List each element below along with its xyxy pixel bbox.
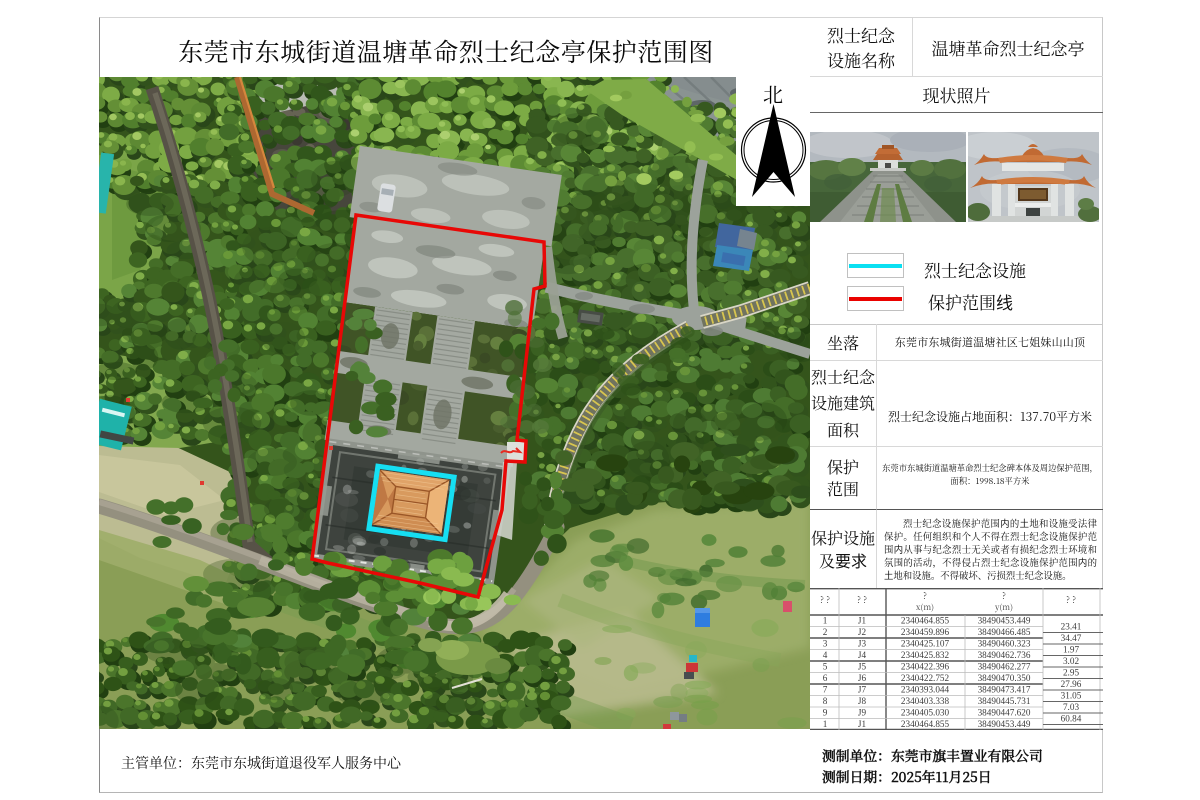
svg-text:? ?: ? ?: [857, 593, 867, 606]
svg-text:1: 1: [823, 616, 828, 626]
svg-text:1: 1: [823, 719, 828, 729]
svg-text:2340464.855: 2340464.855: [901, 719, 950, 729]
svg-text:23.41: 23.41: [1061, 622, 1082, 632]
svg-text:J7: J7: [858, 685, 867, 695]
svg-text:J9: J9: [858, 708, 867, 718]
svg-text:?: ?: [1002, 589, 1006, 602]
svg-text:2340393.044: 2340393.044: [901, 685, 950, 695]
svg-text:J4: J4: [858, 650, 867, 660]
svg-text:?: ?: [923, 589, 927, 602]
svg-text:2340403.338: 2340403.338: [901, 696, 950, 706]
svg-text:38490453.449: 38490453.449: [978, 616, 1031, 626]
svg-text:1.97: 1.97: [1063, 645, 1079, 655]
svg-text:38490460.323: 38490460.323: [978, 639, 1031, 649]
svg-text:2340422.752: 2340422.752: [901, 673, 950, 683]
svg-text:J1: J1: [858, 719, 867, 729]
svg-text:? ?: ? ?: [820, 593, 830, 606]
svg-text:2: 2: [823, 627, 828, 637]
svg-text:J5: J5: [858, 662, 867, 672]
svg-text:38490447.620: 38490447.620: [978, 708, 1031, 718]
svg-text:2340425.832: 2340425.832: [901, 650, 950, 660]
svg-text:38490445.731: 38490445.731: [978, 696, 1031, 706]
svg-text:x(m): x(m): [916, 602, 934, 613]
svg-text:5: 5: [823, 662, 828, 672]
svg-text:2340425.107: 2340425.107: [901, 639, 950, 649]
svg-text:北: 北: [763, 79, 783, 108]
svg-text:34.47: 34.47: [1061, 633, 1082, 643]
svg-text:2340405.030: 2340405.030: [901, 708, 950, 718]
svg-text:38490470.350: 38490470.350: [978, 673, 1031, 683]
svg-text:38490453.449: 38490453.449: [978, 719, 1031, 729]
svg-text:J2: J2: [858, 627, 867, 637]
svg-text:6: 6: [823, 673, 828, 683]
svg-text:J8: J8: [858, 696, 867, 706]
svg-text:y(m): y(m): [994, 602, 1013, 613]
svg-text:38490462.736: 38490462.736: [978, 650, 1031, 660]
svg-text:38490466.485: 38490466.485: [978, 627, 1031, 637]
svg-text:7.03: 7.03: [1063, 702, 1079, 712]
svg-text:J3: J3: [858, 639, 867, 649]
svg-text:J6: J6: [858, 673, 867, 683]
svg-text:38490473.417: 38490473.417: [978, 685, 1031, 695]
svg-text:27.96: 27.96: [1061, 679, 1082, 689]
svg-text:3.02: 3.02: [1063, 656, 1079, 666]
svg-text:38490462.277: 38490462.277: [978, 662, 1031, 672]
svg-text:60.84: 60.84: [1061, 714, 1082, 724]
svg-text:3: 3: [823, 639, 828, 649]
svg-text:31.05: 31.05: [1061, 691, 1082, 701]
svg-text:2340459.896: 2340459.896: [901, 627, 950, 637]
svg-text:9: 9: [823, 708, 828, 718]
svg-text:4: 4: [823, 650, 828, 660]
svg-text:2340464.855: 2340464.855: [901, 616, 950, 626]
svg-text:J1: J1: [858, 616, 867, 626]
svg-text:2340422.396: 2340422.396: [901, 662, 950, 672]
svg-text:? ?: ? ?: [1066, 593, 1076, 606]
svg-text:2.95: 2.95: [1063, 668, 1079, 678]
svg-text:8: 8: [823, 696, 828, 706]
svg-text:7: 7: [823, 685, 828, 695]
